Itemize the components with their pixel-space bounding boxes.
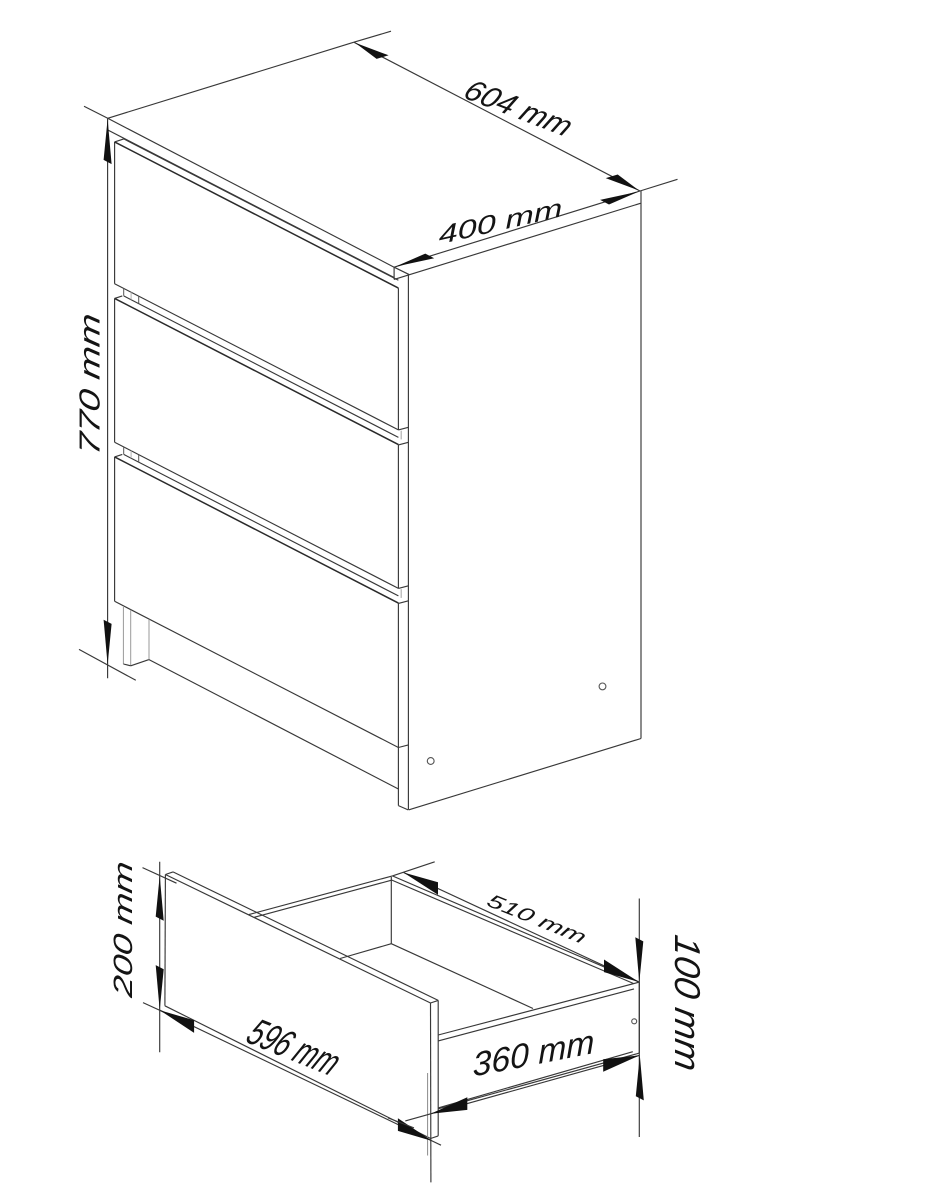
svg-text:100 mm: 100 mm <box>667 932 708 1074</box>
svg-text:200 mm: 200 mm <box>108 859 138 1001</box>
svg-text:770 mm: 770 mm <box>75 311 107 458</box>
